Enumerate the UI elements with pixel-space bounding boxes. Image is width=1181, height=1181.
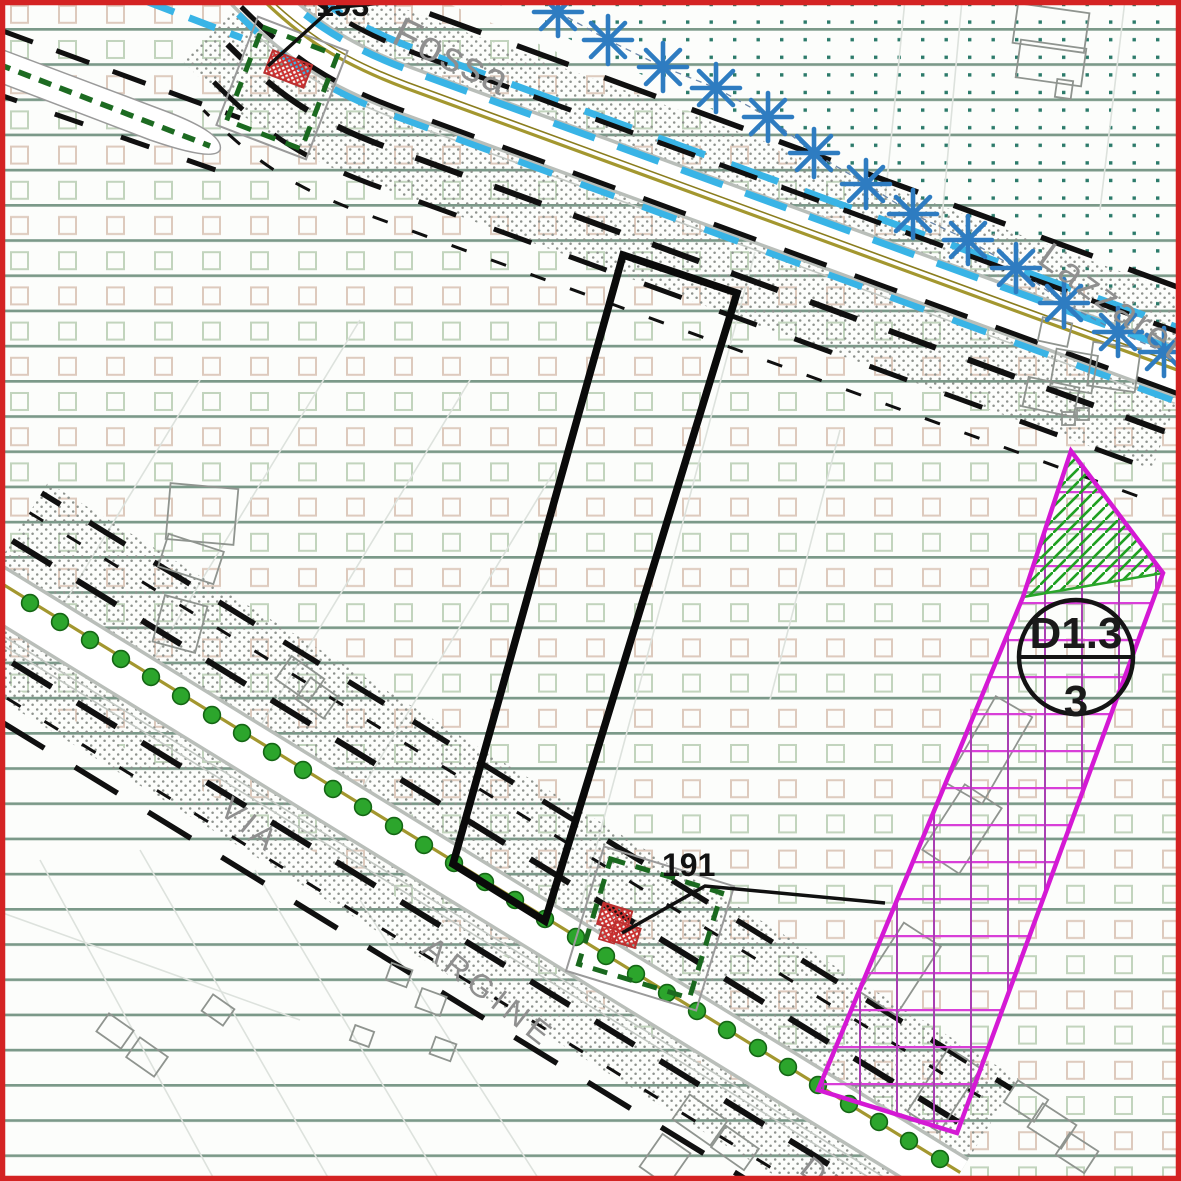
- zone-denominator: 3: [1064, 677, 1088, 726]
- zone-code: D1.3: [1030, 609, 1123, 658]
- map-canvas: D1.3 3 Fossa Lazzaretti VIA ARGINE DI 19…: [0, 0, 1181, 1181]
- zoning-map-page: D1.3 3 Fossa Lazzaretti VIA ARGINE DI 19…: [0, 0, 1181, 1181]
- building-label-191: 191: [662, 847, 715, 883]
